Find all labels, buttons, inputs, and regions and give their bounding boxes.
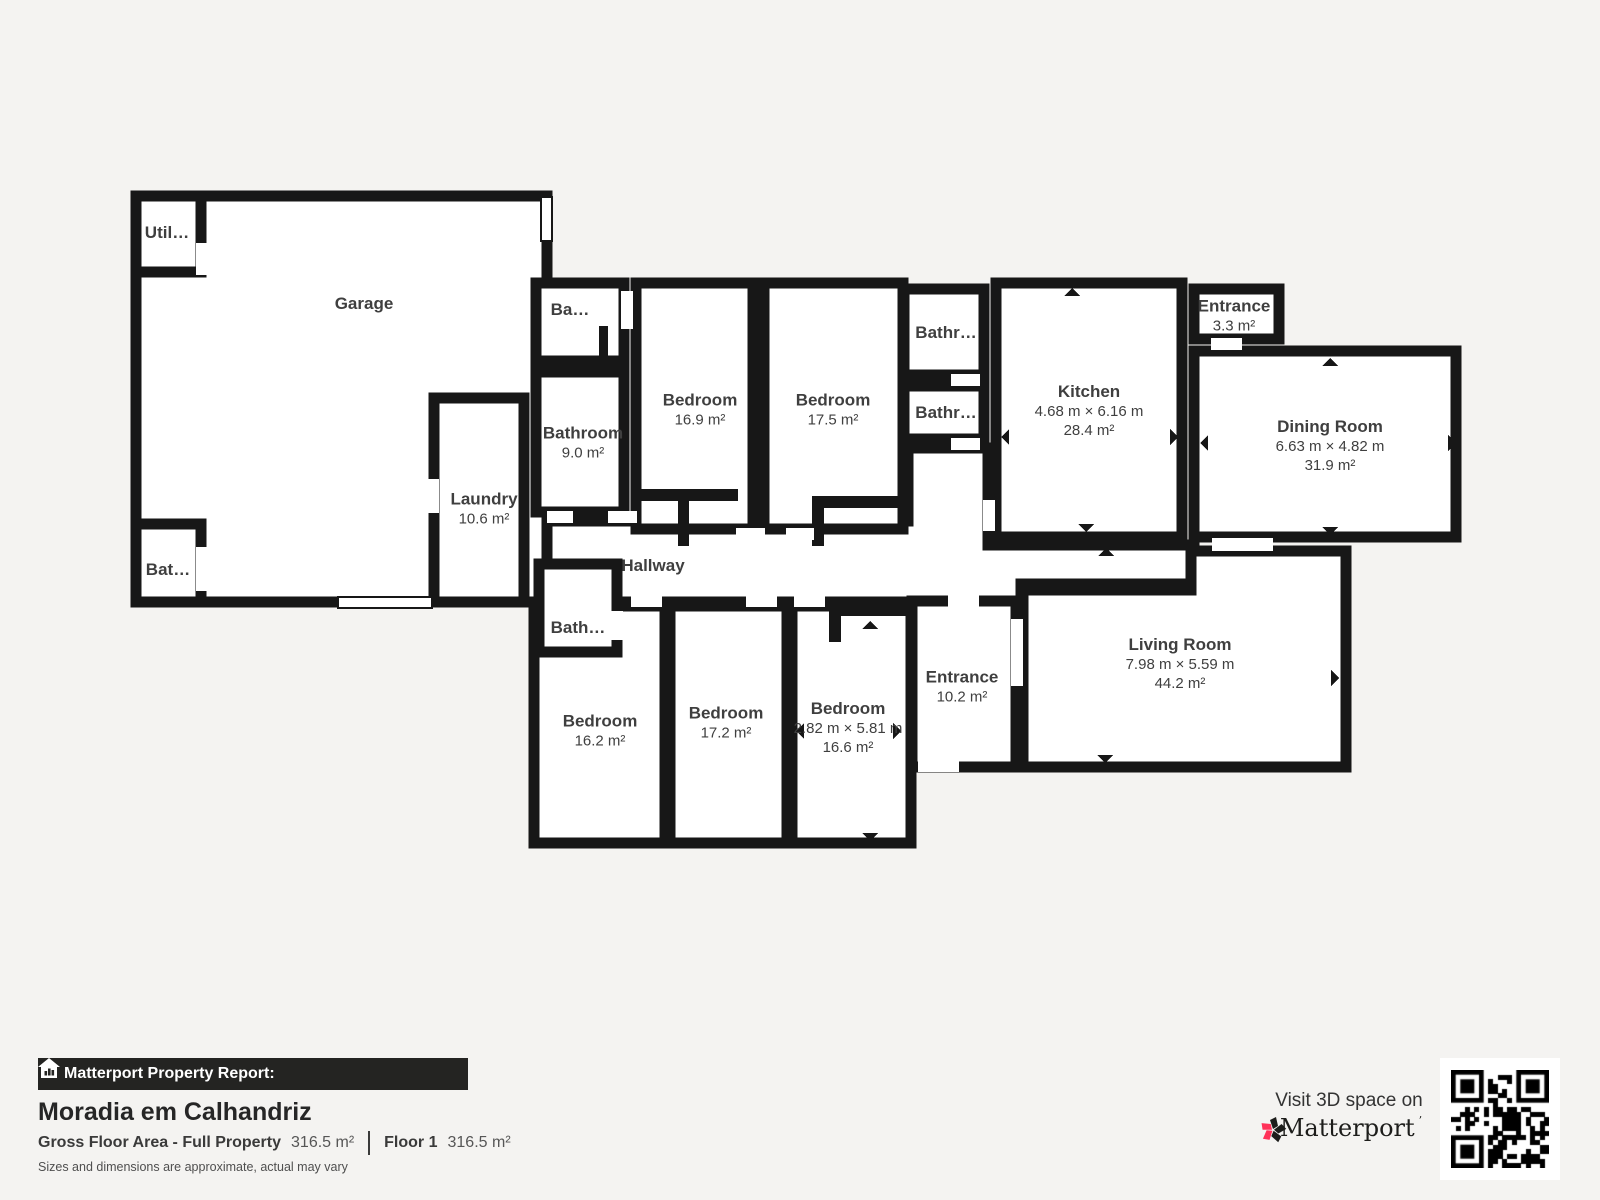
visit-3d-label: Visit 3D space on — [1258, 1090, 1440, 1112]
room-label-bathroom9: Bathroom 9.0 m² — [543, 424, 623, 463]
room-label-bedroom162: Bedroom 16.2 m² — [563, 712, 638, 751]
matterport-logo: Matterport’ — [1258, 1114, 1440, 1142]
room-label-bath-top: Ba… — [551, 300, 590, 320]
floor-plan — [0, 0, 1600, 1200]
report-header-bar: Matterport Property Report: — [38, 1058, 468, 1090]
qr-code — [1440, 1058, 1560, 1180]
room-bath-hall-shape — [539, 564, 617, 652]
room-label-kitchen: Kitchen 4.68 m × 6.16 m 28.4 m² — [1035, 382, 1144, 440]
room-label-entrance-small: Entrance 3.3 m² — [1198, 297, 1271, 336]
area-summary: Gross Floor Area - Full Property 316.5 m… — [38, 1131, 511, 1155]
room-label-hallway: Hallway — [621, 556, 684, 576]
gfa-value: 316.5 m² — [291, 1134, 354, 1152]
property-report-page: Garage Util… Bat… Laundry 10.6 m² Ba… Ba… — [0, 0, 1600, 1200]
gfa-label: Gross Floor Area - Full Property — [38, 1134, 281, 1152]
room-label-dining: Dining Room 6.63 m × 4.82 m 31.9 m² — [1276, 417, 1385, 475]
room-label-bedroom172: Bedroom 17.2 m² — [689, 704, 764, 743]
property-title: Moradia em Calhandriz — [38, 1098, 312, 1127]
matterport-wordmark: Matterport — [1280, 1114, 1415, 1142]
qr-code-pattern — [1451, 1070, 1549, 1168]
report-bar-label: Matterport Property Report: — [64, 1065, 275, 1083]
room-label-bedroom166: Bedroom 2.82 m × 5.81 m 16.6 m² — [794, 699, 903, 757]
room-label-bedroom175: Bedroom 17.5 m² — [796, 391, 871, 430]
room-label-bathroomr1: Bathr… — [915, 323, 976, 343]
floor-value: 316.5 m² — [448, 1134, 511, 1152]
divider — [368, 1131, 370, 1155]
floor-label: Floor 1 — [384, 1134, 437, 1152]
room-label-laundry: Laundry 10.6 m² — [450, 490, 517, 529]
room-label-bath-hall: Bath… — [551, 618, 606, 638]
room-label-bath-garage: Bat… — [146, 560, 190, 580]
room-label-living: Living Room 7.98 m × 5.59 m 44.2 m² — [1126, 635, 1235, 693]
room-label-utility: Util… — [145, 223, 189, 243]
trademark-symbol: ’ — [1419, 1114, 1423, 1127]
room-label-bedroom169: Bedroom 16.9 m² — [663, 391, 738, 430]
room-label-bathroomr2: Bathr… — [915, 403, 976, 423]
room-label-garage: Garage — [335, 294, 394, 314]
room-bath-top-shape — [536, 283, 624, 361]
disclaimer-text: Sizes and dimensions are approximate, ac… — [38, 1160, 348, 1174]
room-label-entrance-main: Entrance 10.2 m² — [926, 668, 999, 707]
